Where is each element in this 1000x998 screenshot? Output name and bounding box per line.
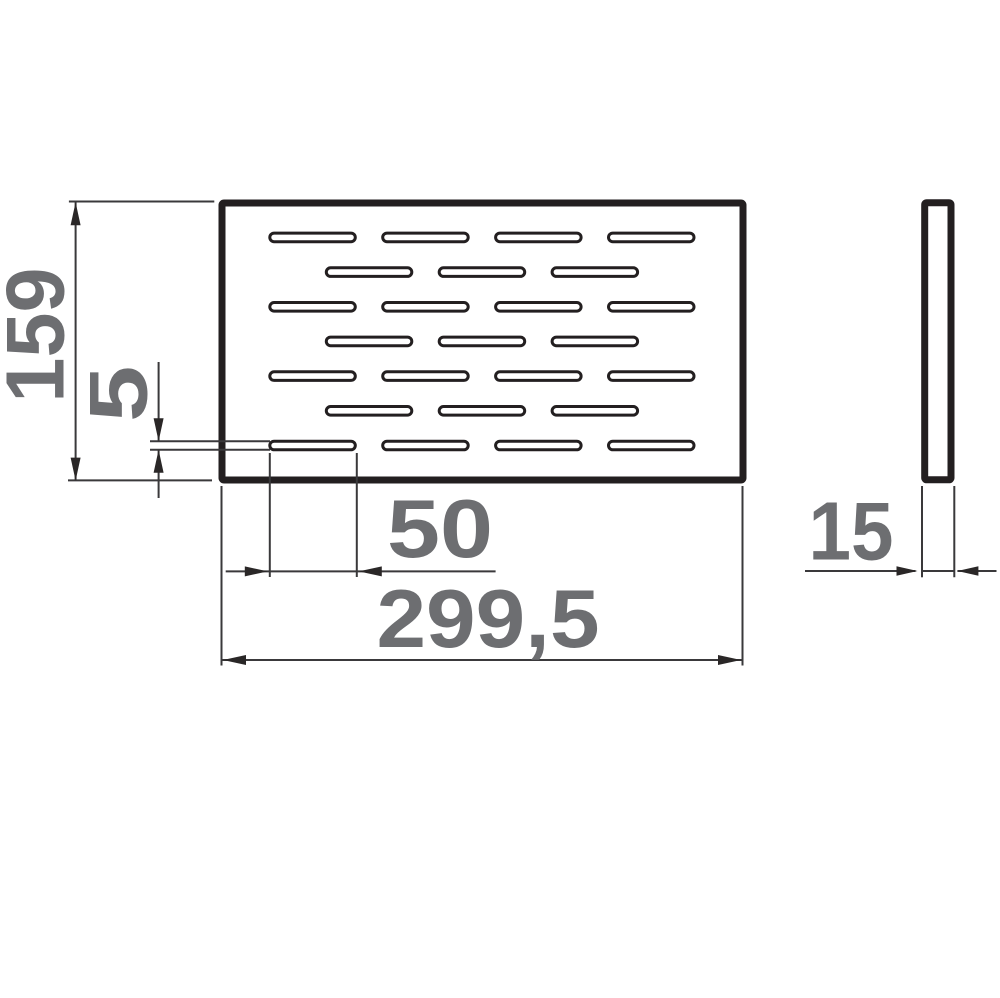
- svg-text:50: 50: [387, 482, 493, 575]
- svg-text:159: 159: [0, 267, 82, 402]
- svg-text:15: 15: [809, 485, 894, 578]
- svg-text:5: 5: [72, 366, 165, 423]
- svg-text:299,5: 299,5: [377, 572, 600, 665]
